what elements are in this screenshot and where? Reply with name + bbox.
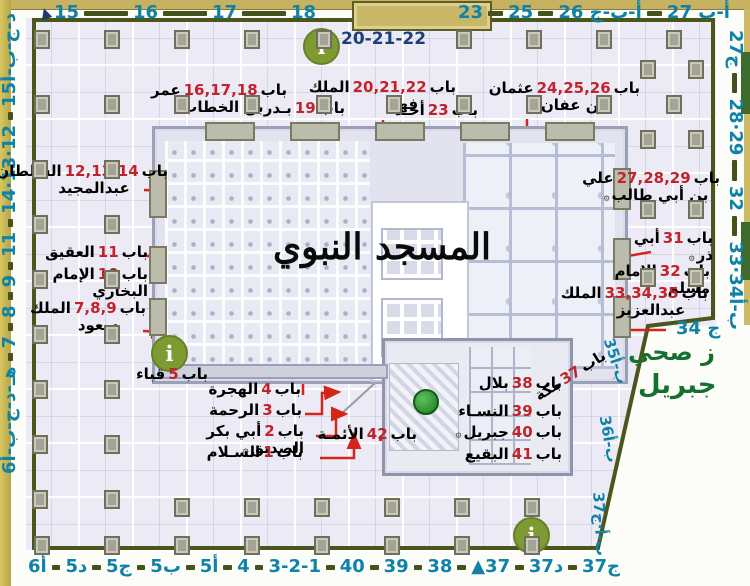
edge-number: 3-2-1 <box>268 558 321 576</box>
bab-word: باب <box>122 243 148 261</box>
border-dash <box>242 11 286 16</box>
border-dash <box>255 565 264 570</box>
gate-label-33-34-35: باب33,34,35الملك عبدالعزيز <box>594 285 708 319</box>
border-dash <box>733 216 738 236</box>
gate-portico <box>149 298 167 336</box>
bab-word: باب <box>391 425 417 443</box>
edge-number: أ-ب 27 <box>667 4 730 22</box>
gate-label-31: باب31أبي ذر۞ <box>615 230 713 264</box>
bab-word: باب <box>687 229 713 247</box>
bab-word: باب <box>120 299 146 317</box>
umbrella-base <box>174 30 190 49</box>
bab-word: باب <box>142 162 168 180</box>
umbrella-base <box>384 536 400 555</box>
umbrella-base <box>244 30 260 49</box>
gate-name: الهجرة <box>209 380 259 398</box>
edge-number: أ6 <box>28 558 47 576</box>
gate-label-38: باب38بلال <box>476 375 562 392</box>
umbrella-base <box>32 160 48 179</box>
gate-label-24-25-26: باب24,25,26عثمان بن عفان۞ <box>498 80 640 114</box>
umbrella-base <box>174 536 190 555</box>
umbrella-base <box>640 130 656 149</box>
umbrella-base <box>32 435 48 454</box>
edge-number: 33·34ب-أ <box>726 241 744 330</box>
edge-number: 25 <box>508 4 533 22</box>
bab-word: باب <box>536 423 562 441</box>
edge-number: د37 <box>529 558 563 576</box>
umbrella-base <box>244 536 260 555</box>
gate-number: 31 <box>663 229 684 247</box>
gate-label-39: باب39النسـاء <box>460 403 562 420</box>
gate-portico <box>290 122 340 141</box>
edge-number: 16 <box>133 4 158 22</box>
umbrella-base <box>666 95 682 114</box>
gate-name: الأئمـة <box>318 425 364 443</box>
umbrella-base <box>454 498 470 517</box>
edge-number: 28·29 <box>726 98 744 155</box>
umbrella-base <box>32 490 48 509</box>
umbrella-base <box>640 268 656 287</box>
gate-label-1: باب1السـلام <box>171 444 303 461</box>
border-dash <box>92 565 101 570</box>
gate-name: بـدر <box>264 99 292 117</box>
umbrella-base <box>384 498 400 517</box>
border-dash <box>84 11 128 16</box>
umbrella-base <box>104 490 120 509</box>
bab-word: باب <box>430 78 456 96</box>
edge-number: 4 <box>237 558 250 576</box>
gate-portico <box>460 122 510 141</box>
umbrella-base <box>456 95 472 114</box>
border-dash <box>733 73 738 93</box>
gate-name: الرحمة <box>209 401 259 419</box>
gate-name: بلال <box>479 374 509 392</box>
umbrella-base <box>34 536 50 555</box>
umbrella-base <box>640 60 656 79</box>
umbrella-base <box>32 270 48 289</box>
bab-word: باب <box>614 79 640 97</box>
bab-word: باب <box>275 380 301 398</box>
edge-number: د-ج-ب-أ15 <box>1 13 19 107</box>
umbrella-base <box>316 30 332 49</box>
edge-number: 7 <box>1 336 19 349</box>
edge-number: 39 <box>384 558 409 576</box>
umbrella-base <box>456 30 472 49</box>
mosque-title: المسجد النبوي <box>263 226 501 268</box>
edge-number: ▲37 <box>471 558 510 576</box>
umbrella-base <box>34 95 50 114</box>
gate-number: 7,8,9 <box>74 299 117 317</box>
gate-number: 27,28,29 <box>617 169 691 187</box>
umbrella-base <box>104 30 120 49</box>
umbrella-base <box>526 95 542 114</box>
right-edge-numbers: 27ج28·293233·34ب-أ <box>725 30 745 330</box>
gate-label-42: باب42الأئمـة <box>353 426 417 443</box>
umbrella-base <box>32 380 48 399</box>
umbrella-base <box>104 380 120 399</box>
border-dash <box>8 112 13 120</box>
border-dash <box>8 353 13 361</box>
edge-number: 40 <box>340 558 365 576</box>
gate-number: 11 <box>98 243 119 261</box>
umbrella-base <box>104 325 120 344</box>
corner-number-34: ج 34 <box>676 318 720 339</box>
border-dash <box>223 565 232 570</box>
edge-number: 32 <box>726 186 744 211</box>
gate-label-4: باب4الهجرة <box>211 381 301 398</box>
bab-word: باب <box>536 445 562 463</box>
edge-number: ج37 <box>582 558 620 576</box>
border-dash <box>326 565 335 570</box>
bab-word: باب <box>182 365 208 383</box>
diagonal-number-37: 37ب-أ·ج <box>589 492 610 557</box>
info-icon-glyph: i <box>166 341 174 366</box>
bab-word: باب <box>694 169 720 187</box>
green-label-health: ز صحي <box>628 338 715 366</box>
edge-number: أ5 <box>200 558 219 576</box>
gate-portico <box>375 122 425 141</box>
border-dash <box>8 219 13 227</box>
edge-number: 38 <box>427 558 452 576</box>
border-dash <box>647 11 662 16</box>
umbrella-base <box>688 200 704 219</box>
border-dash <box>8 292 13 300</box>
gate-number: 1 <box>263 443 273 461</box>
gate-number: 40 <box>512 423 533 441</box>
green-label-jibreel: جبريل <box>638 370 717 400</box>
bab-word: باب <box>122 265 148 283</box>
umbrella-base <box>314 536 330 555</box>
gate-number: 20,21,22 <box>353 78 427 96</box>
left-edge-numbers: د-ج-ب-أ1512·13·1411987هـ-د-ج-ب-أ6 <box>0 13 20 443</box>
border-dash <box>186 565 195 570</box>
border-dash <box>414 565 423 570</box>
umbrella-base <box>244 498 260 517</box>
gate-number: 23 <box>428 101 449 119</box>
umbrella-base <box>104 160 120 179</box>
edge-number: 17 <box>212 4 237 22</box>
gate-number: 32 <box>660 262 681 280</box>
gate-label-27-28-29: باب27,28,29علي بن أبي طالب۞ <box>592 170 720 204</box>
gate-label-11: باب11العقيق <box>56 244 148 261</box>
umbrella-base <box>104 95 120 114</box>
gate-label-41: باب41البقيع <box>462 446 562 463</box>
umbrella-base <box>688 130 704 149</box>
border-dash <box>370 565 379 570</box>
umbrella-base <box>174 498 190 517</box>
gate-name: العقيق <box>45 243 95 261</box>
map: i i i ▲ 15161718 2325أ-ب-ج 26أ-ب 27 20-2… <box>0 0 750 586</box>
umbrella-base <box>32 325 48 344</box>
bab-word: باب <box>536 402 562 420</box>
gate-portico <box>149 246 167 284</box>
gate-name: السـلام <box>207 443 261 461</box>
umbrella-base <box>688 60 704 79</box>
gate-number: 38 <box>512 374 533 392</box>
umbrella-base <box>640 200 656 219</box>
honorific-icon: ۞ <box>456 429 462 440</box>
umbrella-base <box>666 30 682 49</box>
bab-word: باب <box>278 422 304 440</box>
edge-number: ب5 <box>150 558 181 576</box>
edge-number: 18 <box>291 4 316 22</box>
umbrella-base <box>314 498 330 517</box>
gate-label-40: باب40جبريل۞ <box>452 424 562 441</box>
bab-word: باب <box>536 374 562 392</box>
border-dash <box>8 262 13 270</box>
gate-label-5: باب5قباء <box>136 366 208 383</box>
gate-number: 42 <box>367 425 388 443</box>
gate-number: 39 <box>512 402 533 420</box>
gate-number: 19 <box>295 99 316 117</box>
edge-number: هـ-د-ج-ب-أ6 <box>1 366 19 474</box>
umbrella-base <box>524 498 540 517</box>
gate-portico <box>205 122 255 141</box>
border-dash <box>538 11 553 16</box>
gate-number: 3 <box>262 401 272 419</box>
edge-number: ج5 <box>106 558 132 576</box>
edge-number: 27ج <box>726 30 744 68</box>
border-dash <box>137 565 146 570</box>
umbrella-base <box>34 30 50 49</box>
umbrella-base <box>596 30 612 49</box>
gate-number: 12,13,14 <box>65 162 139 180</box>
gate-label-7-8-9: باب7,8,9الملك سعود <box>50 300 146 334</box>
top-edge-numbers-left: 15161718 <box>54 4 316 22</box>
edge-number: 11 <box>1 232 19 257</box>
umbrella-base <box>596 95 612 114</box>
gate-name: النسـاء <box>458 402 509 420</box>
edge-number: 23 <box>458 4 483 22</box>
border-dash <box>8 323 13 331</box>
bottom-edge-numbers: أ6د5ج5ب5أ543-2-1403938▲37د37ج37 <box>28 558 620 576</box>
border-dash <box>488 11 503 16</box>
honorific-icon: ۞ <box>604 192 610 203</box>
gate-name: البقيع <box>465 445 509 463</box>
umbrella-base <box>104 270 120 289</box>
umbrella-base <box>104 215 120 234</box>
bab-word: باب <box>277 443 303 461</box>
top-edge-numbers-right: 2325أ-ب-ج 26أ-ب 27 <box>458 4 730 22</box>
umbrella-base <box>104 536 120 555</box>
umbrella-base <box>386 95 402 114</box>
gate-number: 41 <box>512 445 533 463</box>
gate-number: 5 <box>168 365 178 383</box>
edge-number: 8 <box>1 305 19 318</box>
bab-word: باب <box>261 81 287 99</box>
edge-number: 9 <box>1 275 19 288</box>
umbrella-base <box>174 95 190 114</box>
gate-name: جبريل <box>463 423 508 441</box>
umbrella-base <box>244 95 260 114</box>
umbrella-base <box>104 435 120 454</box>
bab-word: باب <box>276 401 302 419</box>
gate-label-3: باب3الرحمة <box>196 402 302 419</box>
umbrella-base <box>524 536 540 555</box>
border-dash <box>163 11 207 16</box>
border-dash <box>52 565 61 570</box>
green-dome <box>413 389 439 415</box>
edge-number: 15 <box>54 4 79 22</box>
border-dash <box>733 160 738 180</box>
gate-number: 2 <box>264 422 274 440</box>
gate-portico <box>545 122 595 141</box>
border-dash <box>457 565 466 570</box>
border-dash <box>515 565 524 570</box>
edge-number: أ-ب-ج 26 <box>558 4 642 22</box>
umbrella-base <box>688 268 704 287</box>
top-sub-numbers: 20-21-22 <box>341 29 426 49</box>
edge-number: د5 <box>65 558 87 576</box>
gate-name: قباء <box>136 365 165 383</box>
gate-number: 4 <box>261 380 271 398</box>
umbrella-base <box>454 536 470 555</box>
umbrella-base <box>316 95 332 114</box>
umbrella-base <box>32 215 48 234</box>
border-dash <box>568 565 577 570</box>
umbrella-base <box>526 30 542 49</box>
